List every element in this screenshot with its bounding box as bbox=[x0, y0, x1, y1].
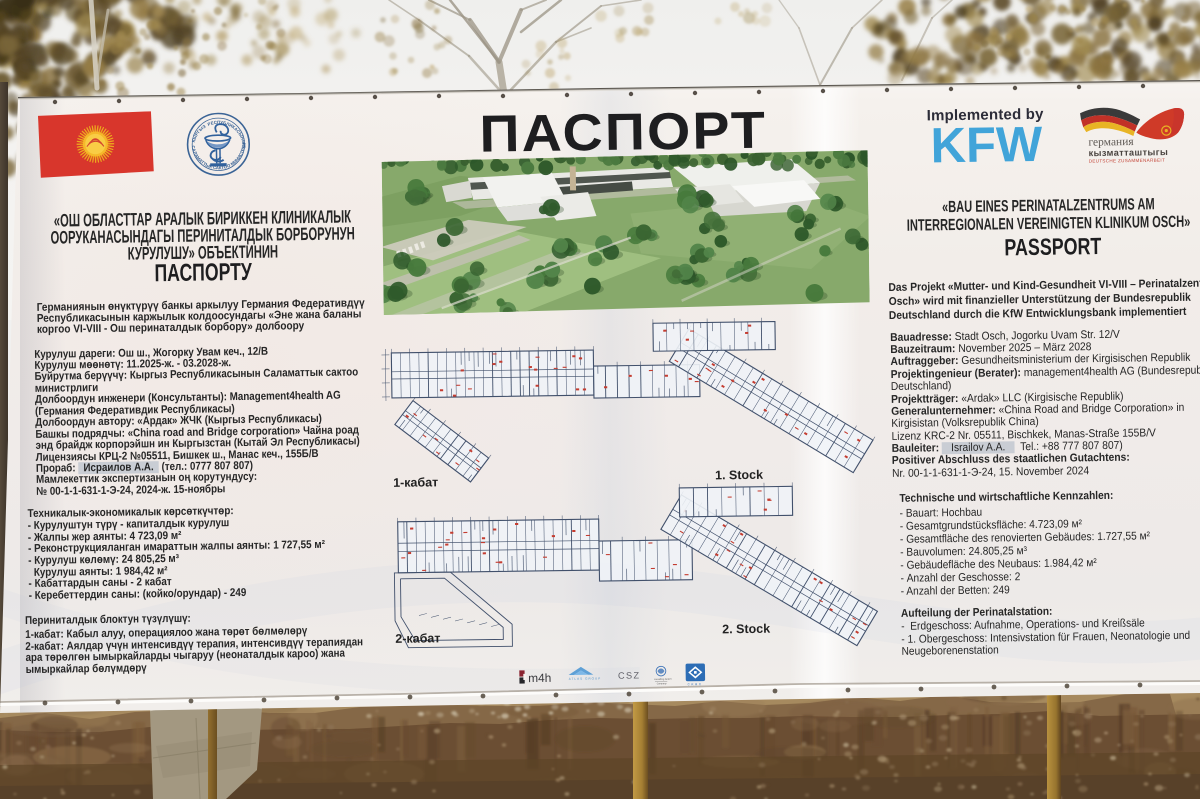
svg-text:1-кабат: 1-кабат bbox=[393, 475, 438, 490]
svg-text:C R B C: C R B C bbox=[688, 682, 702, 686]
svg-text:CSZ: CSZ bbox=[618, 670, 641, 680]
svg-text:Company: Company bbox=[657, 683, 668, 685]
svg-text:1. Stock: 1. Stock bbox=[715, 468, 763, 483]
svg-text:кызматташтыгы: кызматташтыгы bbox=[1089, 147, 1169, 158]
svg-text:DEUTSCHE ZUSAMMENARBEIT: DEUTSCHE ZUSAMMENARBEIT bbox=[1089, 157, 1165, 163]
svg-text:2-кабат: 2-кабат bbox=[395, 631, 440, 646]
svg-text:2. Stock: 2. Stock bbox=[722, 622, 770, 637]
svg-text:ATLAS GROUP: ATLAS GROUP bbox=[569, 676, 602, 680]
svg-text:consulting GmbH: consulting GmbH bbox=[654, 678, 672, 681]
svg-text:m4h: m4h bbox=[528, 671, 551, 685]
